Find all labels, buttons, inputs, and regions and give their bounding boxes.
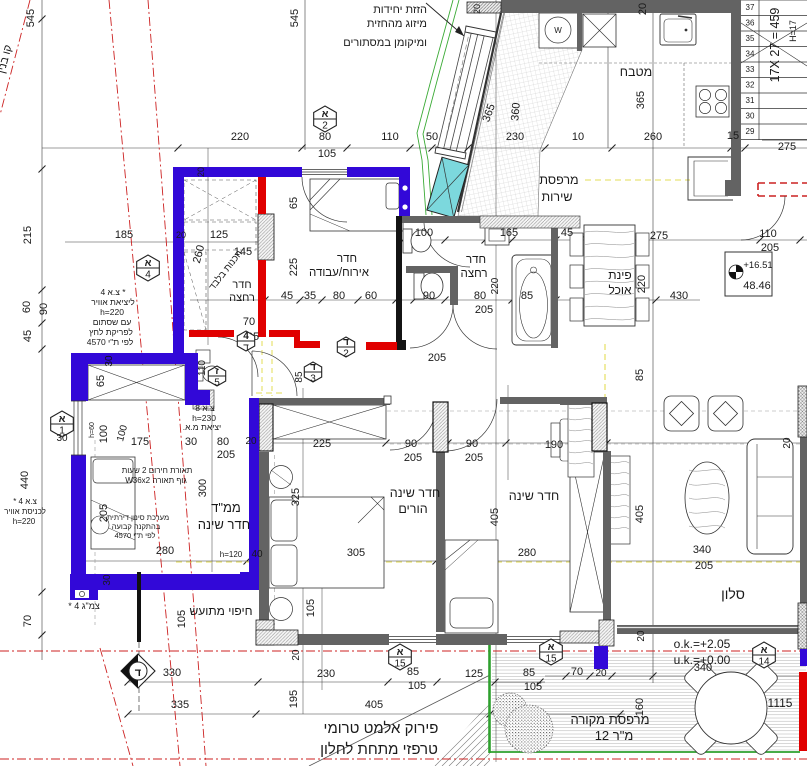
svg-text:440: 440	[19, 471, 31, 489]
svg-text:30: 30	[746, 112, 755, 121]
svg-text:ז: ז	[215, 366, 219, 377]
svg-text:ד: ד	[243, 343, 249, 354]
svg-text:הזזת יחידות: הזזת יחידות	[373, 4, 427, 16]
svg-text:85: 85	[521, 290, 533, 302]
svg-text:40: 40	[251, 549, 263, 560]
svg-text:205: 205	[465, 452, 483, 464]
svg-text:א: א	[548, 642, 555, 653]
svg-text:חיפוי מתועש: חיפוי מתועש	[189, 604, 252, 618]
svg-text:15: 15	[545, 654, 557, 665]
svg-text:5: 5	[214, 378, 220, 389]
svg-text:125: 125	[465, 668, 483, 680]
svg-text:85: 85	[523, 667, 535, 679]
svg-text:205: 205	[695, 560, 713, 572]
svg-text:חדר: חדר	[466, 254, 486, 266]
svg-text:לכניסת אוויר: לכניסת אוויר	[4, 507, 46, 516]
svg-text:195: 195	[288, 690, 300, 708]
svg-text:325: 325	[290, 488, 302, 506]
svg-text:34: 34	[746, 50, 755, 59]
svg-text:100: 100	[98, 425, 110, 443]
svg-text:360: 360	[509, 102, 523, 121]
svg-text:300: 300	[197, 479, 209, 497]
svg-text:20: 20	[637, 3, 649, 15]
svg-text:35: 35	[304, 290, 316, 302]
svg-text:צ.א 4 *: צ.א 4 *	[100, 287, 126, 297]
svg-text:15: 15	[394, 659, 406, 670]
svg-text:65: 65	[288, 197, 300, 209]
svg-text:30: 30	[56, 433, 68, 444]
svg-text:545: 545	[289, 9, 301, 27]
svg-text:37: 37	[746, 3, 755, 12]
svg-text:20: 20	[595, 668, 607, 679]
svg-text:85: 85	[407, 666, 419, 678]
svg-text:80: 80	[319, 131, 331, 143]
svg-text:15: 15	[727, 130, 739, 142]
svg-text:275: 275	[778, 141, 796, 153]
svg-text:חדר: חדר	[232, 279, 251, 291]
svg-text:110: 110	[381, 131, 399, 143]
svg-text:מרפסת: מרפסת	[539, 173, 578, 187]
svg-text:70: 70	[571, 666, 583, 678]
svg-text:70: 70	[22, 615, 34, 627]
svg-text:טרפזי מתחת לחלון: טרפזי מתחת לחלון	[320, 741, 438, 758]
svg-text:2: 2	[322, 121, 328, 132]
svg-text:.יציאת מ.א: .יציאת מ.א	[183, 422, 222, 432]
svg-text:430: 430	[670, 290, 688, 302]
svg-text:חדר שינה: חדר שינה	[390, 486, 440, 500]
svg-text:H=17: H=17	[788, 20, 798, 42]
svg-text:190: 190	[545, 439, 563, 451]
svg-text:220: 220	[490, 277, 501, 294]
svg-text:שירות: שירות	[542, 190, 573, 204]
svg-text:o.k.=+2.05: o.k.=+2.05	[674, 637, 731, 651]
svg-text:110: 110	[759, 228, 777, 240]
svg-text:א: א	[145, 258, 152, 269]
svg-text:90: 90	[423, 290, 435, 302]
svg-text:30: 30	[102, 574, 113, 586]
svg-text:א: א	[761, 645, 768, 656]
svg-text:365: 365	[635, 91, 647, 109]
svg-text:רחצה: רחצה	[229, 292, 255, 304]
svg-text:105: 105	[408, 680, 426, 692]
svg-text:335: 335	[171, 699, 189, 711]
svg-text:20: 20	[291, 649, 302, 661]
svg-text:לפי ת"י 4570: לפי ת"י 4570	[115, 531, 156, 540]
svg-text:חדר שינה: חדר שינה	[198, 517, 250, 532]
svg-text:90: 90	[405, 438, 417, 450]
svg-text:280: 280	[156, 545, 174, 557]
svg-text:ד: ד	[310, 362, 316, 373]
svg-text:29: 29	[746, 127, 755, 136]
svg-text:205: 205	[217, 449, 235, 461]
svg-text:מטבח: מטבח	[620, 65, 652, 79]
svg-text:10: 10	[572, 131, 584, 143]
svg-text:60: 60	[365, 290, 377, 302]
svg-text:125: 125	[210, 229, 228, 241]
svg-text:165: 165	[500, 227, 518, 239]
svg-text:* 4 צמ"ג: * 4 צמ"ג	[68, 601, 100, 611]
svg-text:h=120: h=120	[220, 550, 243, 559]
svg-text:45: 45	[561, 227, 573, 239]
svg-text:36: 36	[746, 19, 755, 28]
svg-text:50: 50	[426, 131, 438, 143]
svg-text:185: 185	[115, 229, 133, 241]
svg-text:4: 4	[145, 270, 151, 281]
svg-text:405: 405	[634, 505, 646, 523]
svg-text:* 4 צ.א: * 4 צ.א	[13, 497, 37, 506]
svg-text:330: 330	[163, 667, 181, 679]
svg-text:80: 80	[474, 290, 486, 302]
svg-text:מ"ר 12: מ"ר 12	[595, 728, 634, 743]
svg-text:20: 20	[245, 436, 257, 447]
svg-text:175: 175	[131, 436, 149, 448]
svg-text:h=60: h=60	[89, 422, 96, 438]
svg-text:45: 45	[281, 290, 293, 302]
svg-text:280: 280	[518, 547, 536, 559]
svg-text:31: 31	[746, 96, 755, 105]
svg-text:225: 225	[288, 258, 300, 276]
svg-text:4570 לפי ת"י: 4570 לפי ת"י	[87, 337, 134, 347]
svg-text:W36x2 גוף תאורה: W36x2 גוף תאורה	[125, 476, 187, 485]
svg-text:230: 230	[506, 131, 524, 143]
svg-text:מערכת סינון דירתית: מערכת סינון דירתית	[107, 513, 169, 522]
svg-text:45: 45	[22, 330, 34, 342]
svg-text:עם שסתום: עם שסתום	[93, 317, 132, 327]
svg-text:אירוח/עבודה: אירוח/עבודה	[309, 267, 370, 279]
svg-text:חדר שינה: חדר שינה	[509, 489, 559, 503]
svg-text:90: 90	[38, 303, 50, 315]
svg-text:260: 260	[644, 131, 662, 143]
svg-text:רחצה: רחצה	[461, 268, 488, 280]
svg-text:70: 70	[243, 316, 255, 328]
svg-text:215: 215	[22, 226, 34, 244]
svg-text:פינת: פינת	[608, 268, 631, 282]
svg-text:275: 275	[650, 230, 668, 242]
svg-text:33: 33	[746, 65, 755, 74]
svg-text:100: 100	[415, 227, 433, 239]
svg-text:הורים: הורים	[398, 502, 427, 516]
svg-text:65: 65	[95, 375, 107, 387]
svg-text:u.k.=+0.00: u.k.=+0.00	[674, 653, 731, 667]
svg-text:110: 110	[197, 360, 208, 376]
svg-text:48.46: 48.46	[743, 280, 771, 292]
svg-text:א: א	[322, 109, 329, 120]
svg-text:h=220: h=220	[13, 517, 36, 526]
svg-text:105: 105	[318, 148, 336, 160]
svg-text:לפריקת לחץ: לפריקת לחץ	[89, 327, 133, 337]
svg-text:20: 20	[196, 167, 206, 177]
svg-text:405: 405	[489, 508, 501, 526]
svg-text:205: 205	[761, 242, 779, 254]
svg-text:א: א	[397, 647, 404, 658]
svg-text:ליציאת אוויר: ליציאת אוויר	[91, 297, 135, 307]
svg-text:20: 20	[472, 4, 482, 14]
svg-text:א: א	[59, 414, 66, 425]
svg-text:תאורת חירום 2 שעות: תאורת חירום 2 שעות	[122, 466, 193, 475]
svg-text:20: 20	[782, 437, 793, 449]
svg-text:14: 14	[758, 657, 770, 668]
svg-text:85: 85	[634, 369, 646, 381]
svg-text:+16.51: +16.51	[743, 260, 772, 271]
svg-text:h=220: h=220	[100, 307, 124, 317]
svg-text:90: 90	[466, 438, 478, 450]
svg-text:20: 20	[636, 630, 647, 642]
svg-text:220: 220	[636, 275, 648, 293]
svg-text:4: 4	[243, 331, 249, 342]
svg-text:1115: 1115	[768, 696, 793, 710]
svg-text:230: 230	[317, 668, 335, 680]
svg-text:35: 35	[746, 34, 755, 43]
svg-text:3: 3	[310, 374, 316, 385]
svg-text:חדר: חדר	[337, 253, 357, 265]
svg-text:2: 2	[343, 349, 349, 360]
svg-text:32: 32	[746, 81, 755, 90]
svg-text:30: 30	[104, 355, 115, 367]
svg-text:105: 105	[305, 599, 317, 617]
svg-text:85: 85	[294, 371, 305, 383]
svg-text:ומיקומן במסתורים: ומיקומן במסתורים	[343, 37, 427, 49]
svg-text:17X 27 = 459: 17X 27 = 459	[768, 8, 782, 83]
svg-text:105: 105	[524, 681, 542, 693]
svg-text:80: 80	[333, 290, 345, 302]
svg-text:8 צ.א: 8 צ.א	[195, 403, 215, 413]
svg-text:מיזוג מהחזית: מיזוג מהחזית	[367, 18, 427, 30]
svg-text:אוכל: אוכל	[608, 283, 632, 297]
svg-text:225: 225	[313, 438, 331, 450]
svg-text:30: 30	[185, 436, 197, 448]
svg-text:ד: ד	[343, 337, 349, 348]
svg-text:פירוק אלמט טרומי: פירוק אלמט טרומי	[324, 720, 439, 737]
svg-text:205: 205	[475, 304, 493, 316]
svg-text:545: 545	[25, 9, 37, 27]
svg-text:60: 60	[21, 301, 33, 313]
svg-text:80: 80	[217, 436, 229, 448]
svg-text:305: 305	[347, 547, 365, 559]
svg-text:בהתקנה קבועה: בהתקנה קבועה	[112, 522, 161, 531]
svg-text:220: 220	[231, 131, 249, 143]
svg-text:405: 405	[365, 699, 383, 711]
svg-text:20: 20	[176, 230, 186, 240]
svg-text:W: W	[554, 26, 562, 35]
svg-text:205: 205	[428, 352, 446, 364]
svg-text:מרפסת מקורה: מרפסת מקורה	[570, 712, 649, 727]
svg-text:205: 205	[404, 452, 422, 464]
svg-text:340: 340	[693, 544, 711, 556]
svg-text:ממ"ד: ממ"ד	[211, 500, 241, 515]
svg-text:105: 105	[176, 610, 188, 628]
svg-text:ד: ד	[135, 667, 142, 679]
svg-text:סלון: סלון	[721, 586, 745, 602]
